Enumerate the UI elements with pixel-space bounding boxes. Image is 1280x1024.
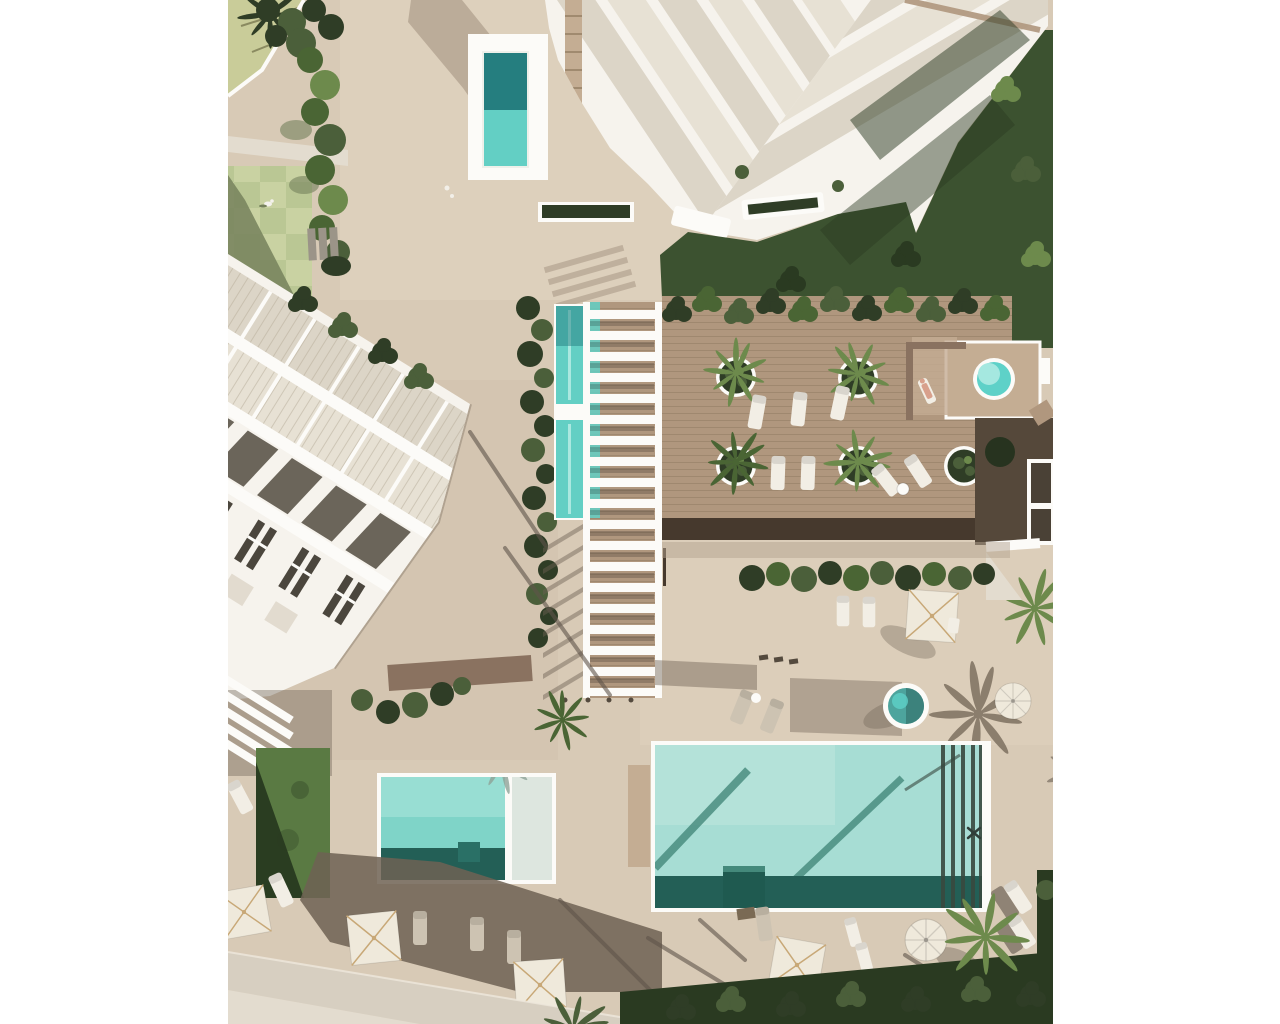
- render-page: [0, 0, 1280, 1024]
- spa-deck: [906, 337, 1050, 420]
- square-parasol: [905, 589, 958, 642]
- bench: [307, 227, 339, 261]
- side-table: [897, 483, 909, 495]
- aerial-render-image: [0, 0, 1280, 1024]
- square-parasol: [347, 911, 402, 966]
- towel-rack: [1040, 358, 1050, 384]
- round-parasol: [905, 919, 947, 961]
- pool-ledge: [628, 765, 650, 867]
- tower-lap-pool: [468, 34, 548, 180]
- round-parasol: [995, 683, 1031, 719]
- pergola-walkway: [516, 245, 666, 703]
